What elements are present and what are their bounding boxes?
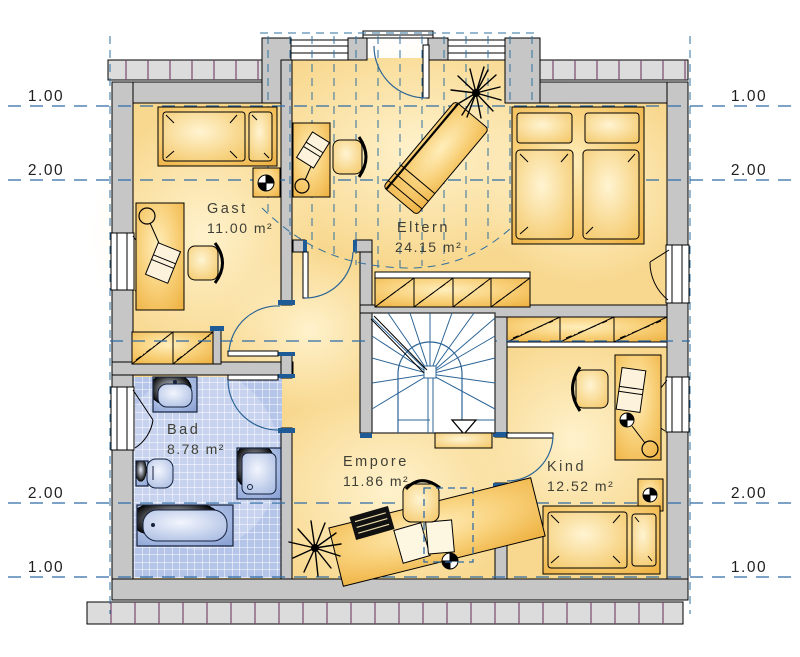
wall-wardrobe-stub bbox=[213, 330, 221, 364]
wall-top-right bbox=[540, 82, 688, 103]
room-label-gast: Gast bbox=[207, 201, 248, 217]
wall-dormer-pillar-2 bbox=[428, 38, 448, 60]
eave-strip-top-right bbox=[535, 60, 688, 80]
room-area-eltern: 24.15 m² bbox=[395, 239, 462, 255]
dim-label-left-1: 1.00 bbox=[28, 88, 64, 105]
eltern-desk bbox=[293, 123, 330, 197]
room-label-kind: Kind bbox=[547, 459, 586, 475]
wall-kind-west-upper bbox=[495, 317, 507, 437]
room-area-bad: 8.78 m² bbox=[167, 441, 225, 457]
dim-label-left-4: 1.00 bbox=[28, 559, 64, 576]
eltern-double-bed bbox=[512, 107, 644, 244]
closet-eltern bbox=[375, 272, 530, 307]
closet-kind bbox=[507, 317, 667, 347]
dim-label-right-3: 2.00 bbox=[731, 485, 767, 502]
stair-landing bbox=[435, 433, 492, 448]
window-dormer-right bbox=[448, 40, 505, 60]
wall-hall-stair-connector bbox=[360, 252, 372, 313]
room-label-bad: Bad bbox=[167, 422, 200, 438]
dim-label-left-3: 2.00 bbox=[28, 485, 64, 502]
room-area-gast: 11.00 m² bbox=[207, 220, 273, 236]
shower bbox=[237, 448, 281, 499]
gast-bed bbox=[158, 107, 277, 166]
floorplan-drawing: 1.00 2.00 2.00 1.00 1.00 2.00 2.00 1.00 … bbox=[0, 0, 800, 657]
dim-label-right-2: 2.00 bbox=[731, 162, 767, 179]
toilet bbox=[136, 459, 173, 488]
gast-chair bbox=[188, 243, 223, 283]
wall-eltern-hall-right bbox=[355, 240, 372, 252]
room-label-empore: Empore bbox=[343, 454, 409, 470]
window-dormer-left bbox=[291, 40, 348, 60]
room-label-eltern: Eltern bbox=[397, 220, 450, 236]
room-area-kind: 12.52 m² bbox=[547, 478, 614, 494]
kind-chair bbox=[573, 367, 609, 411]
eave-strip-top-left bbox=[108, 60, 265, 80]
eave-strip-bottom bbox=[87, 602, 683, 624]
room-area-empore: 11.86 m² bbox=[343, 473, 409, 489]
wall-dormer-pillar-1 bbox=[348, 38, 367, 60]
kind-desk bbox=[615, 355, 661, 460]
dim-label-right-4: 1.00 bbox=[731, 559, 767, 576]
dim-label-right-1: 1.00 bbox=[731, 88, 767, 105]
wall-top-left bbox=[112, 82, 262, 103]
wardrobe-gast bbox=[132, 332, 213, 364]
bathtub bbox=[137, 505, 233, 546]
sink bbox=[153, 377, 197, 412]
floorplan-page: 1.00 2.00 2.00 1.00 1.00 2.00 2.00 1.00 … bbox=[0, 0, 800, 657]
eltern-chair bbox=[333, 137, 366, 177]
dim-label-left-2: 2.00 bbox=[28, 162, 64, 179]
gast-desk bbox=[136, 203, 184, 310]
wall-stair-west bbox=[360, 313, 372, 433]
wall-bottom bbox=[112, 579, 688, 600]
kind-bed bbox=[543, 506, 660, 574]
staircase bbox=[371, 313, 495, 448]
